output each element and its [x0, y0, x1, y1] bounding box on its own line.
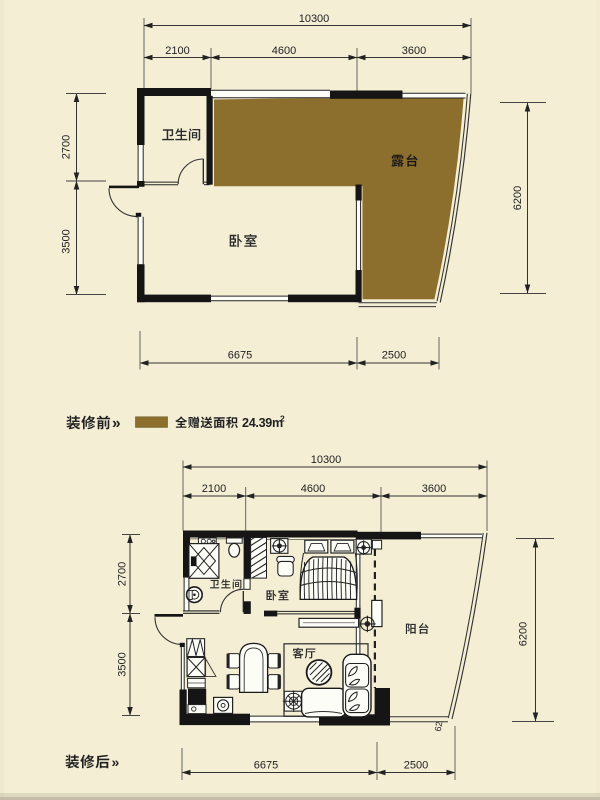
svg-text:2500: 2500 [382, 350, 406, 362]
svg-text:6200: 6200 [518, 622, 530, 646]
svg-text:3600: 3600 [422, 483, 446, 495]
svg-text:24.39m: 24.39m [242, 416, 283, 430]
svg-text:2700: 2700 [61, 135, 73, 159]
svg-text:3600: 3600 [402, 45, 426, 57]
svg-text:2700: 2700 [117, 562, 129, 586]
svg-text:10300: 10300 [311, 454, 342, 466]
svg-text:6200: 6200 [512, 186, 524, 210]
svg-text:2100: 2100 [202, 483, 226, 495]
svg-text:4600: 4600 [301, 483, 325, 495]
svg-text:6675: 6675 [254, 760, 278, 772]
svg-text:2100: 2100 [165, 45, 189, 57]
svg-text:3500: 3500 [61, 229, 73, 253]
svg-text:62: 62 [433, 721, 445, 733]
svg-text:10300: 10300 [299, 13, 330, 25]
svg-text:2500: 2500 [404, 760, 428, 772]
svg-text:6675: 6675 [228, 350, 252, 362]
svg-text:3500: 3500 [117, 652, 129, 676]
svg-text:4600: 4600 [272, 45, 296, 57]
svg-text:2: 2 [280, 414, 285, 424]
svg-text:»: » [112, 754, 120, 770]
svg-text:»: » [112, 415, 121, 432]
